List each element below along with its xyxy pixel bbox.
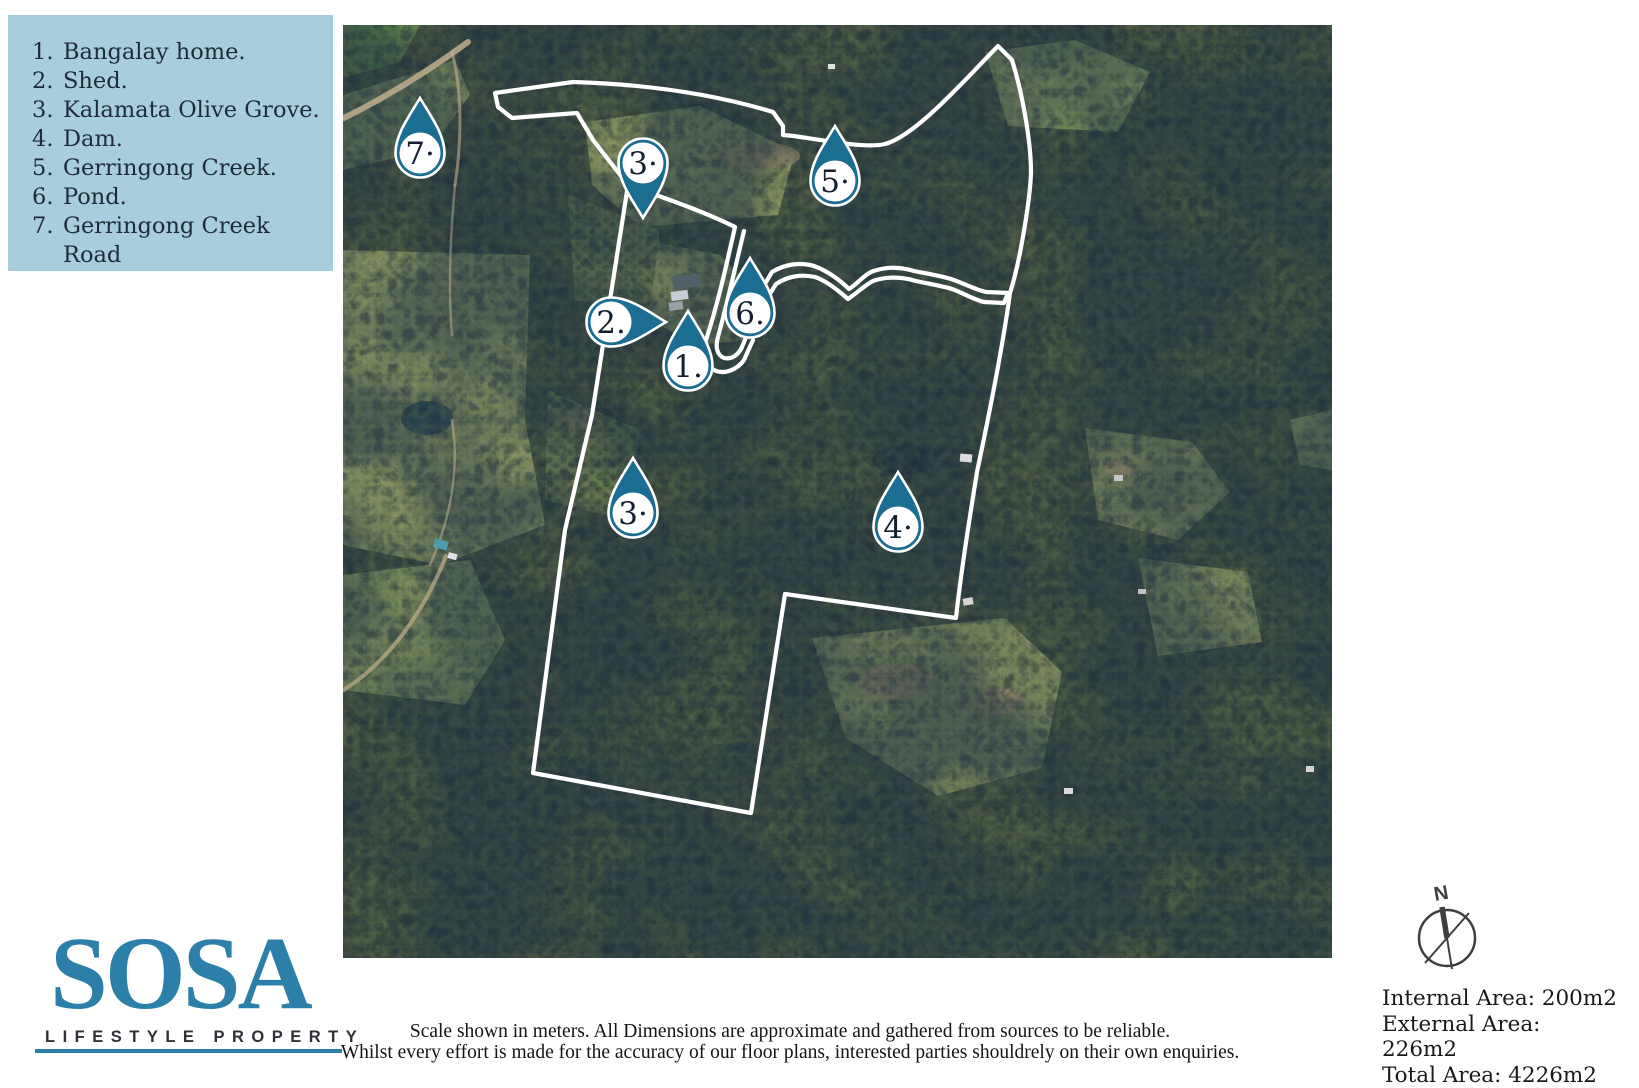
legend-item-1: 1.Bangalay home. — [32, 38, 323, 67]
legend-item-number: 3. — [32, 96, 63, 125]
aerial-photo-svg: 7·3·5·2.6.1.3·4· — [343, 25, 1332, 958]
legend-item-7: 7.Gerringong Creek Road — [32, 212, 323, 270]
pin-number-label: 2. — [596, 305, 626, 341]
legend-item-number: 5. — [32, 154, 63, 183]
legend-item-number: 2. — [32, 67, 63, 96]
brand-logo: SOSA — [50, 922, 350, 1026]
compass-needle-icon — [1442, 907, 1447, 938]
legend-item-label: Gerringong Creek. — [63, 154, 323, 183]
legend-item-2: 2.Shed. — [32, 67, 323, 96]
legend-list: 1.Bangalay home.2.Shed.3.Kalamata Olive … — [32, 38, 323, 270]
aerial-photo: 7·3·5·2.6.1.3·4· — [343, 25, 1332, 958]
legend-item-label: Bangalay home. — [63, 38, 323, 67]
legend-item-label: Pond. — [63, 183, 323, 212]
external-area: External Area: 226m2 — [1382, 1012, 1622, 1063]
legend-box: 1.Bangalay home.2.Shed.3.Kalamata Olive … — [8, 15, 333, 271]
pin-number-label: 3· — [618, 496, 648, 532]
pin-number-label: 3· — [628, 146, 658, 182]
legend-item-6: 6.Pond. — [32, 183, 323, 212]
legend-item-number: 1. — [32, 38, 63, 67]
legend-item-label: Shed. — [63, 67, 323, 96]
brand-tagline: LIFESTYLE PROPERTY — [45, 1028, 365, 1047]
brand-underline — [35, 1049, 342, 1053]
compass-north-label: N — [1432, 882, 1450, 906]
compass: N — [1400, 880, 1495, 975]
pin-number-label: 1. — [673, 349, 703, 385]
disclaimer-line-1: Scale shown in meters. All Dimensions ar… — [340, 1022, 1240, 1043]
pin-number-label: 6. — [735, 296, 765, 332]
area-summary: Internal Area: 200m2 External Area: 226m… — [1382, 986, 1622, 1088]
disclaimer-line-2: Whilst every effort is made for the accu… — [340, 1043, 1240, 1064]
legend-item-number: 7. — [32, 212, 63, 270]
compass-needle-tail-icon — [1447, 938, 1452, 969]
pin-number-label: 4· — [883, 510, 913, 546]
legend-item-number: 6. — [32, 183, 63, 212]
legend-item-number: 4. — [32, 125, 63, 154]
internal-area: Internal Area: 200m2 — [1382, 986, 1622, 1012]
pin-number-label: 7· — [405, 136, 435, 172]
disclaimer: Scale shown in meters. All Dimensions ar… — [340, 1022, 1240, 1063]
legend-item-label: Kalamata Olive Grove. — [63, 96, 323, 125]
legend-item-5: 5.Gerringong Creek. — [32, 154, 323, 183]
legend-item-label: Dam. — [63, 125, 323, 154]
pin-number-label: 5· — [820, 164, 850, 200]
legend-item-3: 3.Kalamata Olive Grove. — [32, 96, 323, 125]
legend-item-label: Gerringong Creek Road — [63, 212, 323, 270]
legend-item-4: 4.Dam. — [32, 125, 323, 154]
total-area: Total Area: 4226m2 — [1382, 1063, 1622, 1088]
